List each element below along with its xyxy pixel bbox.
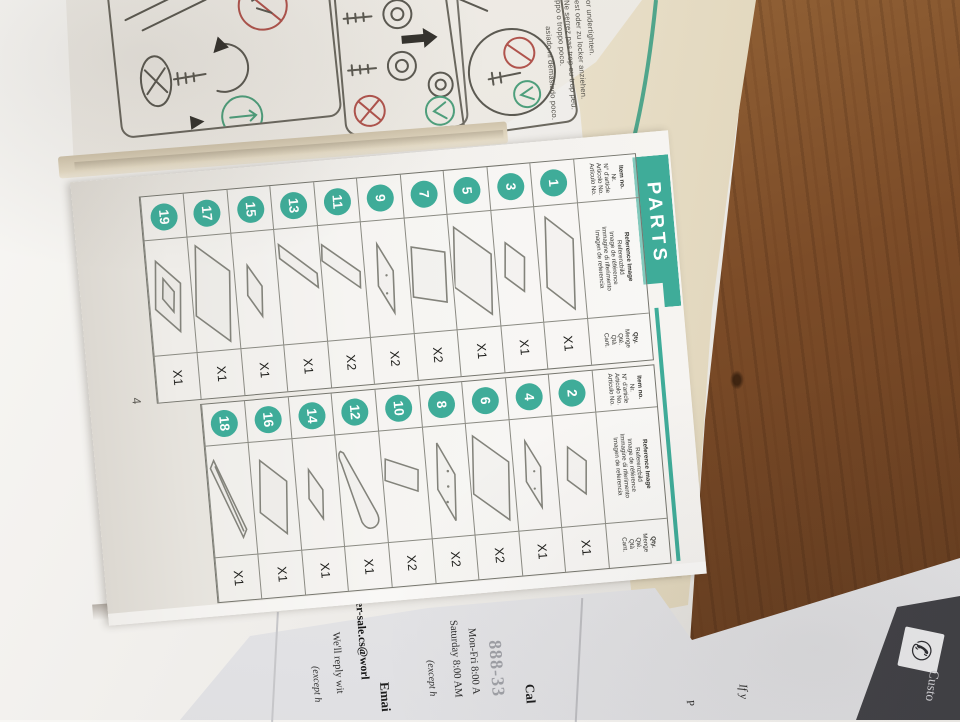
item-number-badge: 15 — [236, 195, 265, 224]
qty-header: Qty.MengeQté.QtàCant. — [587, 314, 653, 365]
qty-cell: X2 — [388, 539, 435, 587]
qty-cell: X1 — [562, 524, 609, 572]
item-number-cell: 13 — [270, 182, 317, 230]
item-number-cell: 5 — [443, 167, 490, 215]
item-number-badge: 18 — [210, 409, 239, 438]
item-number-badge: 9 — [366, 183, 395, 212]
screw-icon — [173, 70, 206, 85]
parts-table-even: Item no.Nr.N° d'articleArticolo No.Artíc… — [200, 364, 672, 603]
header-line: Qtà — [627, 539, 635, 550]
arrow-icon — [401, 27, 439, 50]
qty-cell: X2 — [475, 532, 522, 580]
item-number-badge: 14 — [297, 401, 326, 430]
header-line: Item no. — [616, 165, 625, 189]
card-intro-fragment: If y — [736, 684, 749, 700]
parts-table-odd: Item no.Nr.N° d'articleArticolo No.Artíc… — [139, 153, 654, 404]
qty-cell: X1 — [518, 528, 565, 576]
qty-value: X1 — [214, 365, 229, 382]
item-number-badge: 6 — [471, 386, 500, 415]
qty-value: X1 — [474, 343, 489, 360]
qty-cell: X1 — [214, 555, 261, 603]
qty-value: X2 — [491, 547, 506, 564]
item-number-cell: 3 — [486, 163, 533, 211]
qty-value: X2 — [404, 554, 419, 571]
qty-value: X2 — [387, 350, 402, 367]
qty-value: X2 — [344, 354, 359, 371]
item-number-badge: 10 — [384, 394, 413, 423]
qty-value: X1 — [578, 539, 593, 556]
qty-value: X1 — [274, 566, 289, 583]
part-drawing-board-rounded — [336, 434, 387, 543]
cam-lock-icon — [387, 51, 417, 81]
qty-cell: X1 — [544, 319, 591, 369]
card-page-fragment: P — [684, 700, 696, 707]
furniture-corner-lines — [122, 0, 208, 32]
cam-lock-icon — [382, 0, 412, 29]
item-number-cell: 12 — [331, 390, 378, 436]
qty-header: Qty.MengeQté.QtàCant. — [605, 519, 671, 568]
email-heading: Emai — [376, 681, 394, 712]
qty-value: X1 — [560, 335, 575, 352]
header-line: Cant. — [602, 333, 611, 348]
item-number-cell: 18 — [201, 401, 248, 447]
ok-hand-tool-icon — [512, 79, 541, 108]
item-number-cell: 8 — [418, 382, 465, 428]
qty-value: X1 — [361, 558, 376, 575]
part-drawing-panel-flat-sm — [293, 438, 344, 547]
item-number-cell: 11 — [313, 179, 360, 227]
qty-value: X1 — [257, 362, 272, 379]
part-drawing-panel-tall — [467, 423, 518, 532]
item-number-badge: 13 — [279, 191, 308, 220]
qty-value: X1 — [300, 358, 315, 375]
header-line: Menge — [641, 533, 650, 552]
warning-panel-screwdriver — [103, 0, 342, 139]
triangle-pointer-icon — [190, 114, 205, 129]
qty-cell: X1 — [240, 346, 287, 396]
reference-image-header: Reference ImageReferenzbildImage de réfé… — [595, 407, 667, 524]
qty-cell: X2 — [370, 334, 417, 384]
item-number-badge: 7 — [409, 180, 438, 209]
qty-cell: X2 — [327, 338, 374, 388]
allowed-icon — [425, 96, 455, 126]
item-number-cell: 1 — [530, 160, 577, 208]
item-number-badge: 1 — [539, 168, 568, 197]
qty-cell: X1 — [284, 342, 331, 392]
screw-icon — [488, 69, 521, 85]
part-drawing-panel-holes — [423, 427, 474, 536]
item-number-cell: 2 — [548, 371, 595, 417]
qty-value: X2 — [430, 346, 445, 363]
header-line: Qty. — [649, 536, 657, 548]
item-number-cell: 19 — [140, 194, 187, 242]
phone-number: 888-33 — [484, 639, 509, 697]
item-number-badge: 19 — [149, 202, 178, 231]
reference-image-header: Reference ImageReferenzbildImage de réfé… — [577, 198, 649, 319]
qty-cell: X1 — [258, 551, 305, 599]
part-drawing-panel-mid — [249, 442, 300, 551]
cam-lock-icon — [428, 72, 454, 98]
part-drawing-panel-small — [553, 415, 604, 524]
header-line: Qty. — [631, 332, 639, 344]
furniture-corner-lines — [452, 0, 507, 15]
screw-icon — [348, 63, 377, 75]
item-number-badge: 16 — [254, 405, 283, 434]
qty-cell: X1 — [301, 547, 348, 595]
item-no-header: Item no.Nr.N° d'articleArticolo No.Artíc… — [592, 365, 657, 412]
header-line: Qté. — [616, 333, 624, 345]
qty-value: X1 — [318, 562, 333, 579]
item-number-cell: 15 — [226, 186, 273, 234]
item-number-cell: 14 — [288, 394, 335, 440]
item-number-cell: 4 — [505, 375, 552, 421]
qty-cell: X2 — [414, 330, 461, 380]
phone-icon: ✆ — [904, 636, 939, 664]
header-line: Item no. — [635, 375, 644, 399]
qty-value: X2 — [448, 551, 463, 568]
qty-value: X1 — [231, 570, 246, 587]
qty-value: X1 — [170, 369, 185, 386]
item-number-cell: 16 — [244, 397, 291, 443]
item-number-cell: 9 — [356, 175, 403, 223]
part-drawing-panel-narrow — [380, 430, 431, 539]
item-number-cell: 17 — [183, 190, 230, 238]
item-no-header: Item no.Nr.N° d'articleArticolo No.Artíc… — [573, 154, 639, 203]
item-number-badge: 11 — [323, 187, 352, 216]
item-number-badge: 17 — [193, 199, 222, 228]
header-line: Menge — [623, 329, 632, 348]
page-number: 4 — [129, 397, 144, 405]
item-number-badge: 12 — [340, 397, 369, 426]
qty-cell: X1 — [457, 327, 504, 377]
phone-badge: ✆ — [897, 626, 944, 673]
item-number-cell: 6 — [461, 378, 508, 424]
header-line: Qté. — [634, 537, 642, 549]
item-number-badge: 8 — [427, 390, 456, 419]
qty-cell: X1 — [154, 353, 201, 403]
screw-icon — [343, 11, 372, 23]
item-number-cell: 7 — [400, 171, 447, 219]
item-number-badge: 2 — [558, 378, 587, 407]
parts-page: PARTS Item no.Nr.N° d'articleArticolo No… — [70, 130, 707, 626]
qty-value: X1 — [535, 543, 550, 560]
header-line: Nr. — [628, 384, 636, 393]
header-line: Nr. — [610, 173, 618, 182]
header-line: Qtà — [609, 334, 617, 345]
qty-cell: X1 — [197, 349, 244, 399]
qty-cell: X1 — [344, 543, 391, 591]
qty-cell: X2 — [431, 536, 478, 584]
item-number-badge: 3 — [496, 172, 525, 201]
item-number-badge: 5 — [453, 176, 482, 205]
qty-cell: X1 — [500, 323, 547, 373]
call-heading: Cal — [521, 683, 538, 704]
item-number-cell: 10 — [375, 386, 422, 432]
part-drawing-rail — [206, 446, 257, 555]
part-drawing-panel-flat — [510, 419, 561, 528]
qty-value: X1 — [517, 339, 532, 356]
item-number-badge: 4 — [514, 382, 543, 411]
header-line: Cant. — [620, 537, 629, 552]
